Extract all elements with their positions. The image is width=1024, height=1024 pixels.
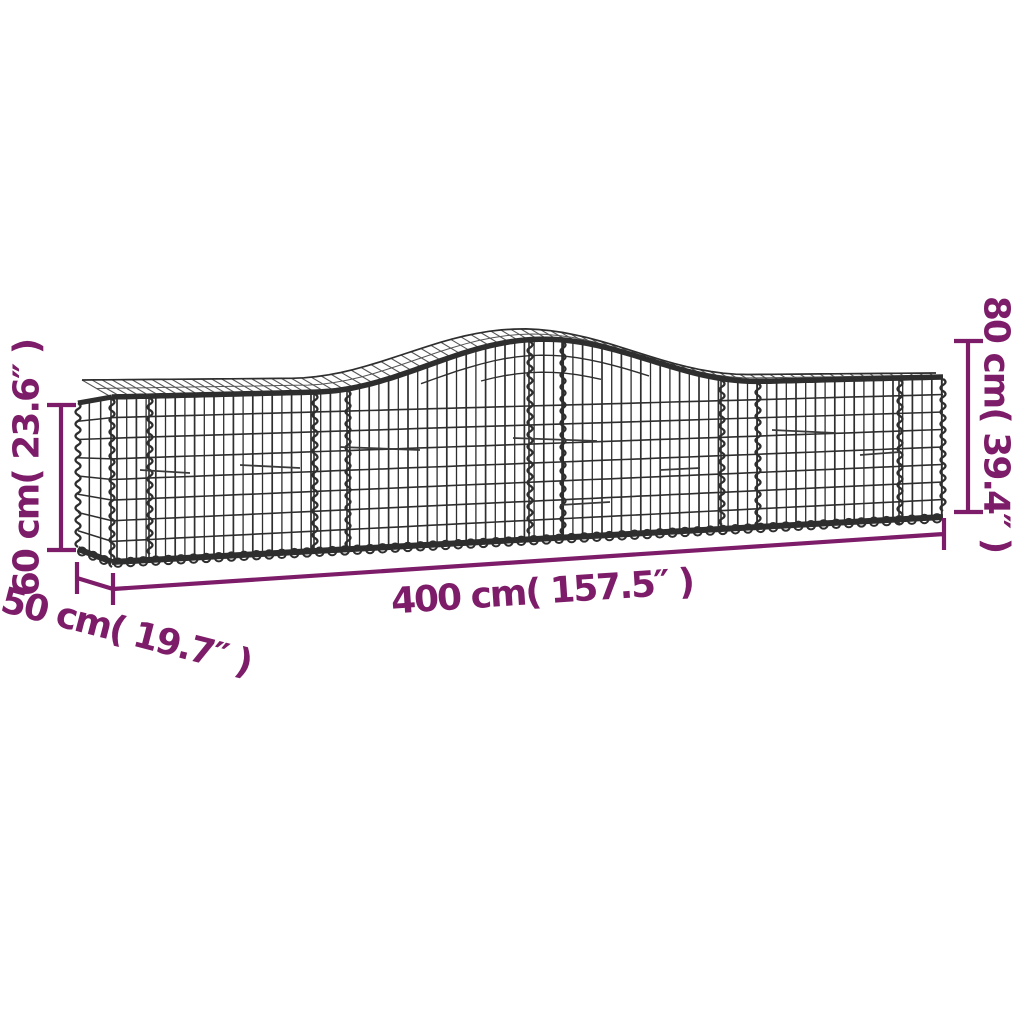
height-left-label: 60 cm( 23.6″ ) xyxy=(7,340,48,596)
gabion-basket-drawing xyxy=(76,329,946,567)
height-right-label: 80 cm( 39.4″ ) xyxy=(976,296,1017,552)
length-label: 400 cm( 157.5″ ) xyxy=(390,562,695,623)
product-dimension-diagram: 60 cm( 23.6″ ) 80 cm( 39.4″ ) 400 cm( 15… xyxy=(0,0,1024,1024)
depth-label: 50 cm( 19.7″ ) xyxy=(0,580,255,684)
height-left-dimension-line xyxy=(47,405,76,550)
